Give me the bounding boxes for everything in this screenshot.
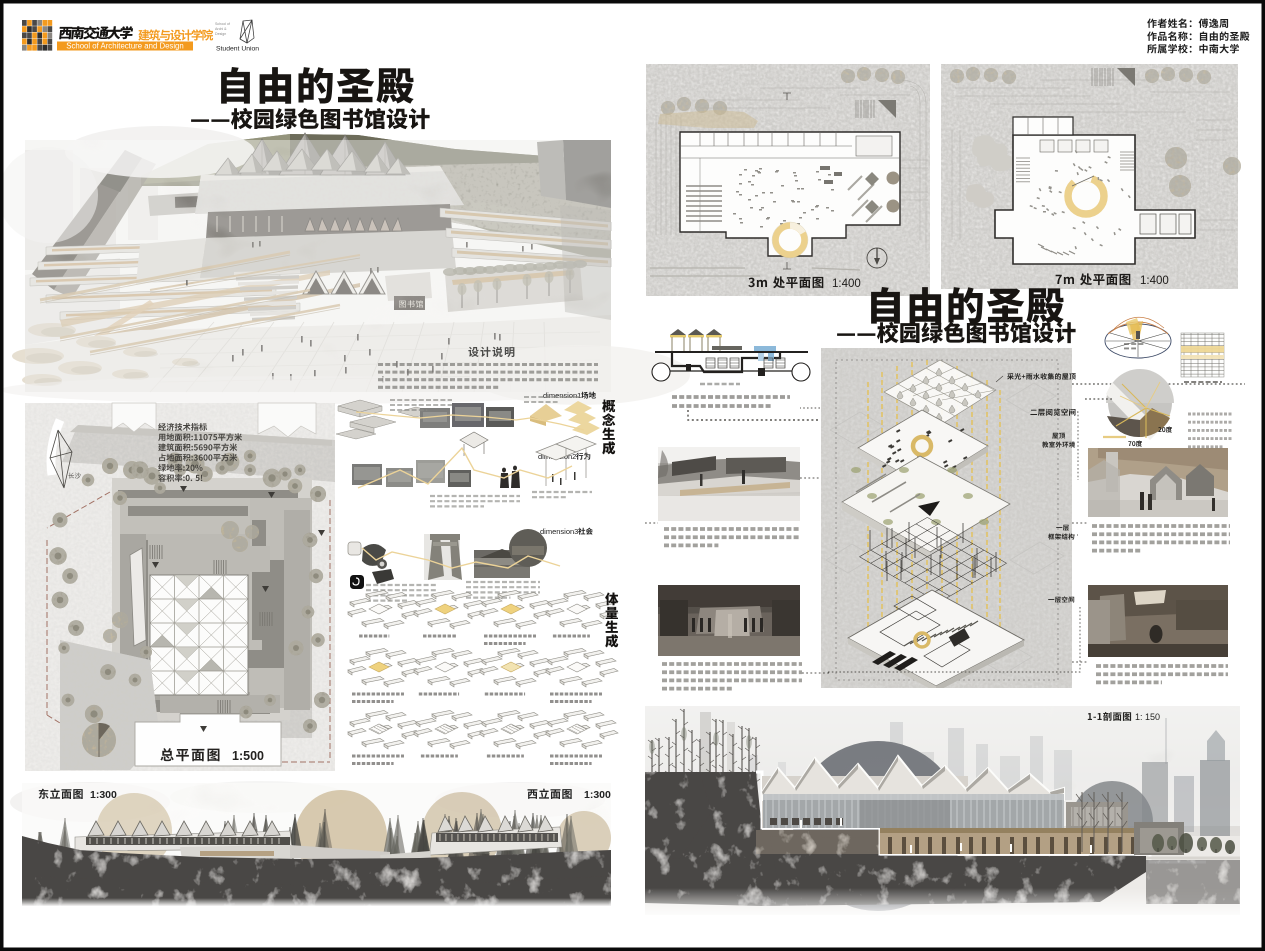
svg-text:School of Architecture and Des: School of Architecture and Design [66,42,183,51]
svg-text:1:500: 1:500 [232,749,264,763]
svg-text:1:300: 1:300 [90,789,117,801]
svg-text:dimension1:: dimension1: [543,391,583,400]
svg-text:Archi &: Archi & [215,27,227,31]
svg-text:1:400: 1:400 [1140,275,1169,287]
svg-text:1:400: 1:400 [832,278,861,290]
svg-text:Student Union: Student Union [216,46,259,53]
svg-text:1:300: 1:300 [584,789,611,801]
svg-text:dimension3:: dimension3: [540,527,580,536]
svg-text:Design: Design [215,32,226,36]
svg-text:1: 150: 1: 150 [1135,712,1160,722]
svg-text:School of: School of [215,22,230,26]
